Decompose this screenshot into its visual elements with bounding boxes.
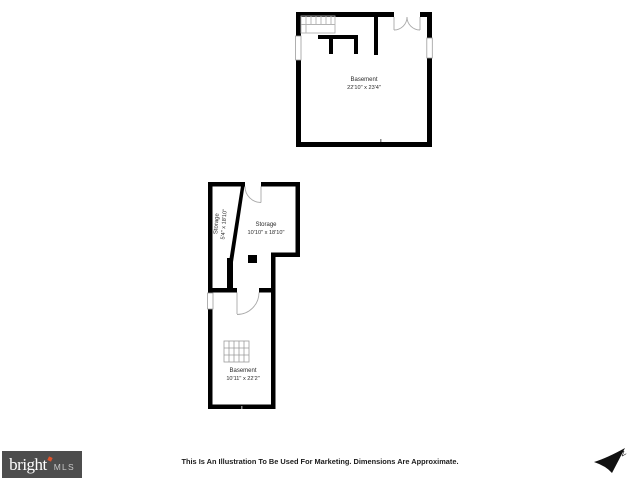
room-label-storage-left: Storage	[213, 212, 220, 234]
room-label-lower-basement: Basement	[229, 368, 256, 374]
room-label-storage-right: Storage	[255, 222, 277, 228]
room-label-upper-basement: Basement	[350, 77, 377, 83]
basement-door-icon	[237, 293, 259, 315]
window-left-lower	[208, 293, 214, 309]
upper-basement-room: Basement 22'10" x 23'4"	[296, 12, 433, 147]
logo-brand-text: bright	[9, 456, 47, 473]
logo-suffix-text: MLS	[54, 462, 75, 472]
rotated-storage-label: Storage 5'4" x 18'10"	[213, 208, 229, 240]
wall-stub	[227, 258, 233, 293]
disclaimer-text: This Is An Illustration To Be Used For M…	[181, 457, 458, 466]
room-dims-upper-basement: 22'10" x 23'4"	[347, 85, 381, 91]
storage-section: Storage 10'10" x 18'10" Storage 5'4" x 1…	[208, 182, 300, 409]
support-pillar	[248, 255, 257, 263]
room-dims-lower-basement: 10'11" x 22'2"	[226, 376, 259, 382]
storage-door-icon	[245, 187, 261, 203]
diagonal-wall	[229, 186, 245, 262]
wall-tick	[241, 406, 243, 409]
floor-plan-svg: Basement 22'10" x 23'4"	[0, 0, 640, 480]
grid-feature	[224, 341, 249, 362]
floorplan-page: Basement 22'10" x 23'4"	[0, 0, 640, 480]
wall-tick	[380, 139, 382, 142]
lower-basement-room: Basement 10'11" x 22'2"	[208, 293, 260, 410]
window-left-upper	[296, 36, 302, 60]
double-door-icon	[394, 17, 420, 30]
brightmls-logo: bright MLS	[2, 451, 82, 478]
room-dims-storage-left: 5'4" x 18'10"	[220, 209, 228, 240]
logo-spark-icon	[47, 456, 52, 461]
room-dims-storage-right: 10'10" x 18'10"	[248, 230, 285, 236]
staircase-icon	[301, 16, 335, 33]
interior-walls-upper	[318, 12, 378, 55]
north-arrow-icon: N	[593, 446, 629, 476]
window-right-upper	[427, 38, 433, 58]
